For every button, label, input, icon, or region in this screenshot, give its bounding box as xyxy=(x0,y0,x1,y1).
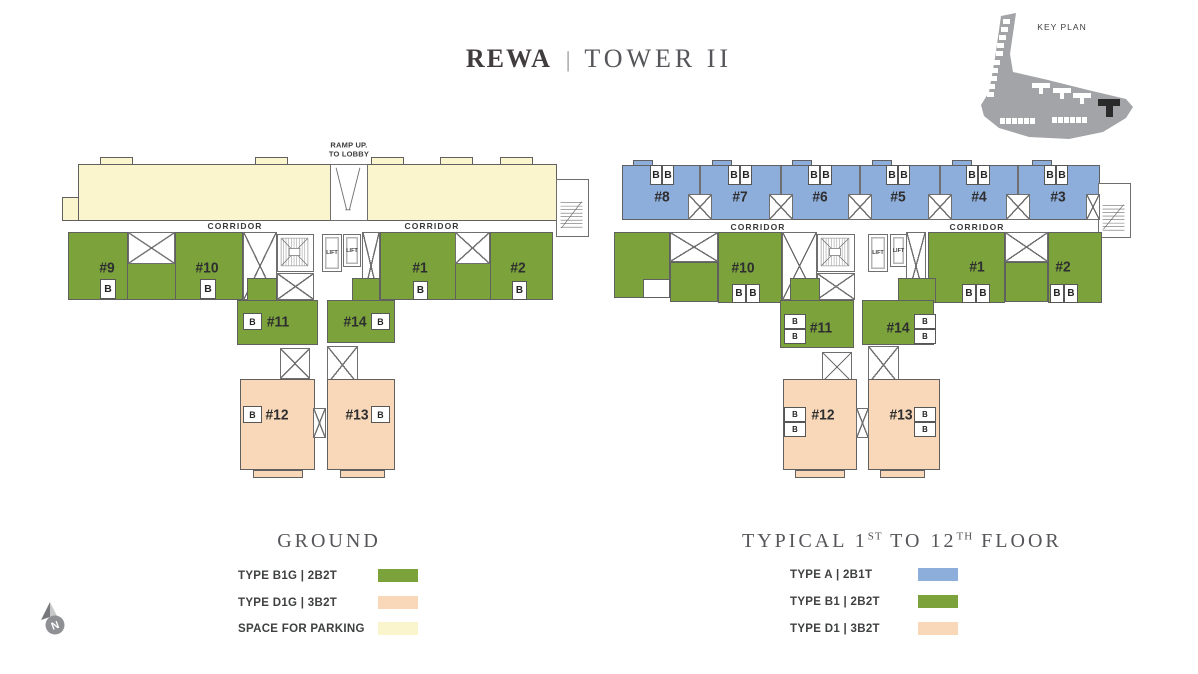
balcony-box: B xyxy=(914,422,936,437)
legend-swatch xyxy=(918,622,958,635)
balcony-box: B xyxy=(732,284,746,303)
balcony-box: B xyxy=(886,165,898,185)
unit-label: #14 xyxy=(886,320,909,337)
unit-label: #10 xyxy=(731,260,754,277)
unit-area xyxy=(670,262,718,302)
void-x-box xyxy=(1005,232,1048,262)
balcony-box: B xyxy=(914,329,936,344)
corridor-label: CORRIDOR xyxy=(730,222,785,232)
void-x-box xyxy=(688,194,712,220)
void-x-box xyxy=(928,194,952,220)
void-x-box xyxy=(1006,194,1030,220)
legend-row: SPACE FOR PARKING xyxy=(238,621,420,637)
lift: LIFT xyxy=(868,234,888,272)
void-x-box xyxy=(822,352,852,382)
balcony-box: B xyxy=(898,165,910,185)
legend-row: TYPE D1 | 3B2T xyxy=(790,621,1003,637)
unit-label: #7 xyxy=(732,189,747,206)
legend-label: TYPE A | 2B1T xyxy=(790,567,872,583)
legend-row: TYPE B1 | 2B2T xyxy=(790,594,1003,610)
balcony-box: B xyxy=(784,329,806,344)
balcony-box: B xyxy=(808,165,820,185)
balcony-box: B xyxy=(784,314,806,329)
unit-label: #8 xyxy=(654,189,669,206)
compass-needle xyxy=(41,602,50,620)
legend-label: SPACE FOR PARKING xyxy=(238,621,365,637)
lift: LIFT xyxy=(890,234,907,267)
balcony-box: B xyxy=(746,284,760,303)
legend-swatch xyxy=(378,622,418,635)
void-x-box xyxy=(1086,194,1100,220)
unit-label: #2 xyxy=(1055,259,1070,276)
wall xyxy=(780,166,782,194)
balcony-box: B xyxy=(740,165,752,185)
balcony-box: B xyxy=(1044,165,1056,185)
legend-row: TYPE D1G | 3B2T xyxy=(238,595,420,611)
unit-label: #4 xyxy=(971,189,986,206)
balcony-box: B xyxy=(1056,165,1068,185)
legend-swatch xyxy=(918,595,958,608)
staircase xyxy=(1098,183,1131,238)
void-x-box xyxy=(817,273,855,300)
unit-label: #3 xyxy=(1050,189,1065,206)
unit-area xyxy=(795,470,845,478)
ground-legend-title: GROUND xyxy=(238,530,420,553)
unit-label: #11 xyxy=(810,320,832,337)
void-x-box xyxy=(848,194,872,220)
legend-label: TYPE B1 | 2B2T xyxy=(790,594,880,610)
legend-label: TYPE B1G | 2B2T xyxy=(238,568,337,584)
legend-swatch xyxy=(378,596,418,609)
void-x-box xyxy=(769,194,793,220)
legend-row: TYPE A | 2B1T xyxy=(790,567,1003,583)
unit-label: #5 xyxy=(890,189,905,206)
balcony-box: B xyxy=(784,422,806,437)
balcony-box: B xyxy=(820,165,832,185)
balcony-box: B xyxy=(962,284,976,303)
balcony-box: B xyxy=(914,407,936,422)
legend-swatch xyxy=(378,569,418,582)
duct-box xyxy=(856,408,869,438)
unit-label: #1 xyxy=(969,259,984,276)
legend-row: TYPE B1G | 2B2T xyxy=(238,568,420,584)
balcony-box: B xyxy=(784,407,806,422)
typical-legend: TYPICAL 1ST TO 12TH FLOOR TYPE A | 2B1T … xyxy=(742,530,1003,640)
wall xyxy=(1017,166,1019,194)
legend-label: TYPE D1 | 3B2T xyxy=(790,621,880,637)
balcony-box: B xyxy=(1064,284,1078,303)
balcony-box: B xyxy=(978,165,990,185)
balcony-box: B xyxy=(662,165,674,185)
legend-swatch xyxy=(918,568,958,581)
unit-area xyxy=(1005,262,1048,302)
staircase xyxy=(817,234,855,272)
corridor-label: CORRIDOR xyxy=(949,222,1004,232)
balcony-box: B xyxy=(728,165,740,185)
unit-label: #12 xyxy=(811,407,834,424)
wall xyxy=(939,166,941,194)
balcony-box: B xyxy=(650,165,662,185)
ground-legend: GROUND TYPE B1G | 2B2T TYPE D1G | 3B2T S… xyxy=(238,530,420,640)
balcony-box: B xyxy=(914,314,936,329)
north-compass: N xyxy=(36,596,80,642)
legend-label: TYPE D1G | 3B2T xyxy=(238,595,337,611)
wall xyxy=(699,166,701,194)
unit-area xyxy=(880,470,925,478)
floor-plan-sheet: REWA | TOWER II KEY PLAN LIFTLIF xyxy=(0,0,1198,674)
unit-label: #13 xyxy=(889,407,912,424)
balcony-box: B xyxy=(1050,284,1064,303)
unit-label: #6 xyxy=(812,189,827,206)
typical-floor-plan: LIFTLIFTBBBBBBBBBBBBBBBBBBBBBBBBBB#8#7#6… xyxy=(0,0,1198,674)
open-area xyxy=(643,279,670,298)
balcony-box: B xyxy=(966,165,978,185)
typical-legend-title: TYPICAL 1ST TO 12TH FLOOR xyxy=(742,530,1003,553)
balcony-box: B xyxy=(976,284,990,303)
wall xyxy=(859,166,861,194)
void-x-box xyxy=(670,232,718,262)
